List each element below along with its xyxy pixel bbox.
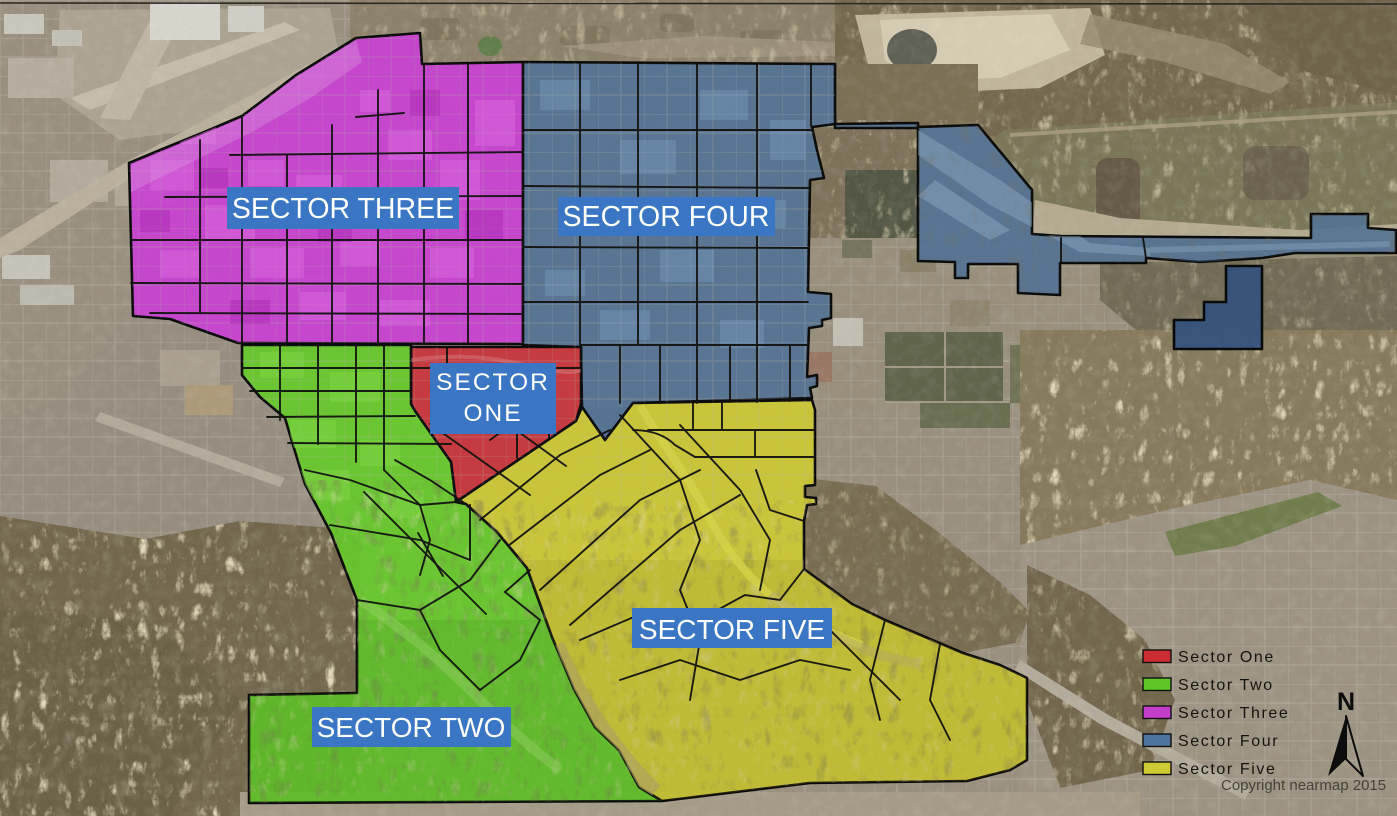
- svg-text:Sector Three: Sector Three: [1178, 705, 1289, 722]
- svg-text:SECTOR FIVE: SECTOR FIVE: [639, 614, 825, 645]
- svg-text:Sector Five: Sector Five: [1178, 761, 1277, 778]
- svg-text:ONE: ONE: [463, 400, 522, 427]
- svg-text:N: N: [1337, 688, 1355, 716]
- svg-text:Sector Four: Sector Four: [1178, 733, 1279, 750]
- svg-text:Sector Two: Sector Two: [1178, 677, 1274, 694]
- svg-text:SECTOR THREE: SECTOR THREE: [232, 193, 454, 225]
- svg-text:Sector One: Sector One: [1178, 649, 1275, 666]
- svg-text:SECTOR: SECTOR: [436, 369, 550, 396]
- svg-text:SECTOR TWO: SECTOR TWO: [317, 712, 506, 743]
- svg-text:SECTOR FOUR: SECTOR FOUR: [563, 201, 770, 233]
- svg-text:Copyright nearmap 2015: Copyright nearmap 2015: [1221, 777, 1386, 794]
